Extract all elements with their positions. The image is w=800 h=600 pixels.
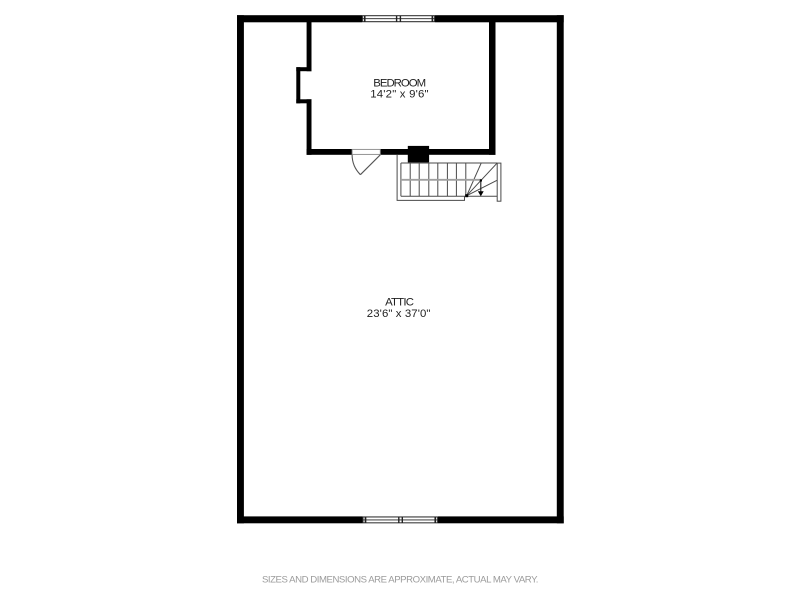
svg-text:ATTIC: ATTIC	[385, 297, 414, 309]
svg-text:23'6" x 37'0": 23'6" x 37'0"	[367, 308, 431, 320]
svg-text:14'2" x 9'6": 14'2" x 9'6"	[370, 89, 429, 101]
svg-text:BEDROOM: BEDROOM	[373, 77, 425, 89]
svg-text:SIZES AND DIMENSIONS ARE APPRO: SIZES AND DIMENSIONS ARE APPROXIMATE, AC…	[262, 574, 538, 585]
